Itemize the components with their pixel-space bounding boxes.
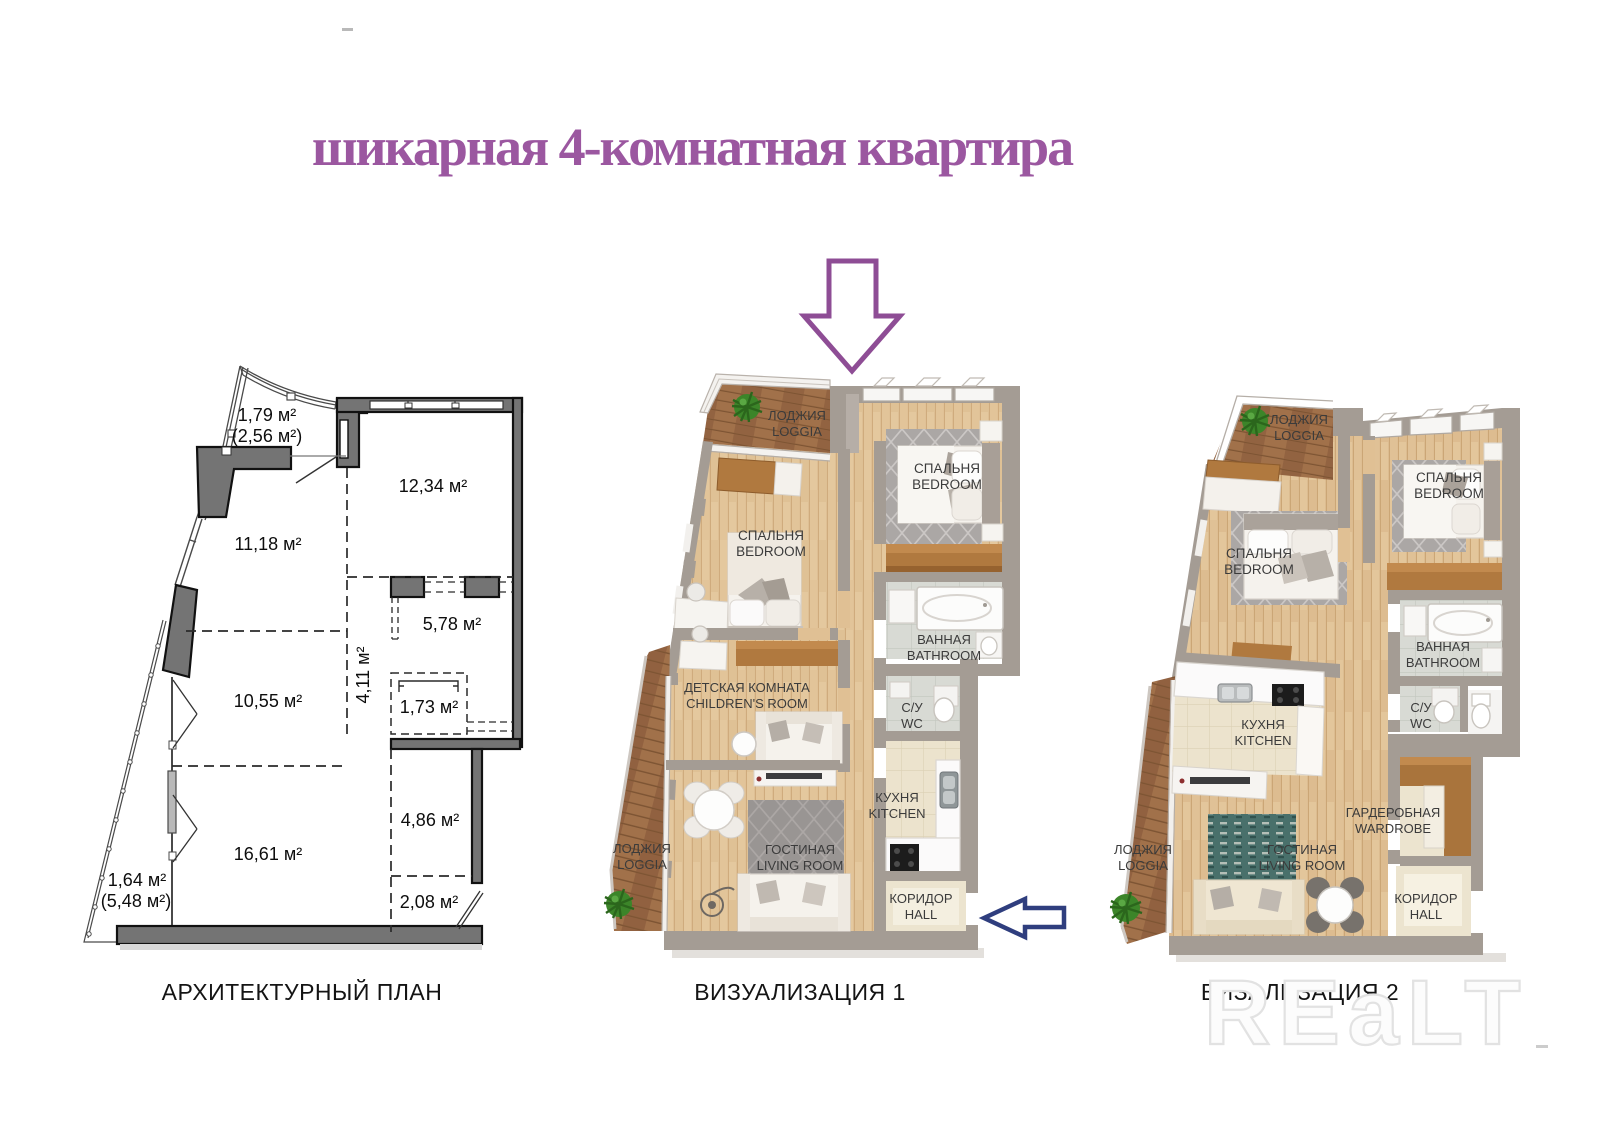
- svg-text:шикарная 4-комнатная квартира: шикарная 4-комнатная квартира: [312, 117, 1074, 177]
- svg-text:КУХНЯ: КУХНЯ: [1241, 717, 1284, 732]
- svg-text:HALL: HALL: [905, 907, 938, 922]
- svg-text:BEDROOM: BEDROOM: [1414, 486, 1484, 501]
- svg-text:ВАННАЯ: ВАННАЯ: [917, 632, 971, 647]
- svg-text:ГОСТИНАЯ: ГОСТИНАЯ: [765, 842, 835, 857]
- svg-text:СПАЛЬНЯ: СПАЛЬНЯ: [914, 461, 980, 476]
- svg-text:СПАЛЬНЯ: СПАЛЬНЯ: [1416, 470, 1482, 485]
- svg-text:16,61 м²: 16,61 м²: [234, 844, 302, 864]
- svg-text:ВИЗУАЛИЗАЦИЯ 1: ВИЗУАЛИЗАЦИЯ 1: [694, 979, 906, 1005]
- svg-text:1,79 м²: 1,79 м²: [238, 405, 296, 425]
- svg-text:СПАЛЬНЯ: СПАЛЬНЯ: [1226, 546, 1292, 561]
- svg-text:(5,48 м²): (5,48 м²): [101, 891, 171, 911]
- svg-text:ДЕТСКАЯ КОМНАТА: ДЕТСКАЯ КОМНАТА: [684, 680, 810, 695]
- svg-text:4,86 м²: 4,86 м²: [401, 810, 459, 830]
- svg-text:СПАЛЬНЯ: СПАЛЬНЯ: [738, 528, 804, 543]
- svg-text:ЛОДЖИЯ: ЛОДЖИЯ: [768, 408, 826, 423]
- svg-text:REaLT: REaLT: [1204, 962, 1529, 1064]
- svg-text:(2,56 м²): (2,56 м²): [232, 426, 302, 446]
- svg-text:WC: WC: [1410, 716, 1432, 731]
- svg-text:ЛОДЖИЯ: ЛОДЖИЯ: [1114, 842, 1172, 857]
- svg-text:4,11 м²: 4,11 м²: [353, 646, 373, 703]
- svg-text:КОРИДОР: КОРИДОР: [1394, 891, 1457, 906]
- svg-text:KITCHEN: KITCHEN: [1234, 733, 1291, 748]
- svg-text:11,18 м²: 11,18 м²: [234, 534, 301, 554]
- svg-text:КОРИДОР: КОРИДОР: [889, 891, 952, 906]
- svg-text:WARDROBE: WARDROBE: [1355, 821, 1431, 836]
- svg-text:LOGGIA: LOGGIA: [617, 857, 667, 872]
- svg-text:ЛОДЖИЯ: ЛОДЖИЯ: [613, 841, 671, 856]
- svg-text:CHILDREN'S ROOM: CHILDREN'S ROOM: [686, 696, 808, 711]
- svg-text:LIVING ROOM: LIVING ROOM: [1259, 858, 1346, 873]
- svg-text:HALL: HALL: [1410, 907, 1443, 922]
- svg-text:BATHROOM: BATHROOM: [907, 648, 981, 663]
- svg-text:LOGGIA: LOGGIA: [1274, 428, 1324, 443]
- svg-text:С/У: С/У: [1410, 700, 1432, 715]
- svg-text:LOGGIA: LOGGIA: [772, 424, 822, 439]
- svg-text:КУХНЯ: КУХНЯ: [875, 790, 918, 805]
- svg-text:LOGGIA: LOGGIA: [1118, 858, 1168, 873]
- svg-text:ВАННАЯ: ВАННАЯ: [1416, 639, 1470, 654]
- svg-text:10,55 м²: 10,55 м²: [234, 691, 302, 711]
- svg-text:12,34 м²: 12,34 м²: [399, 476, 467, 496]
- svg-text:С/У: С/У: [901, 700, 923, 715]
- svg-text:LIVING ROOM: LIVING ROOM: [757, 858, 844, 873]
- svg-text:KITCHEN: KITCHEN: [868, 806, 925, 821]
- svg-text:ЛОДЖИЯ: ЛОДЖИЯ: [1270, 412, 1328, 427]
- svg-text:5,78 м²: 5,78 м²: [423, 614, 481, 634]
- svg-text:АРХИТЕКТУРНЫЙ ПЛАН: АРХИТЕКТУРНЫЙ ПЛАН: [162, 978, 443, 1005]
- svg-text:1,64 м²: 1,64 м²: [108, 870, 166, 890]
- svg-text:BEDROOM: BEDROOM: [736, 544, 806, 559]
- svg-text:2,08 м²: 2,08 м²: [400, 892, 458, 912]
- svg-text:ГАРДЕРОБНАЯ: ГАРДЕРОБНАЯ: [1346, 805, 1441, 820]
- svg-text:ГОСТИНАЯ: ГОСТИНАЯ: [1267, 842, 1337, 857]
- svg-text:1,73 м²: 1,73 м²: [400, 697, 458, 717]
- svg-text:BATHROOM: BATHROOM: [1406, 655, 1480, 670]
- svg-text:BEDROOM: BEDROOM: [1224, 562, 1294, 577]
- svg-text:WC: WC: [901, 716, 923, 731]
- svg-text:BEDROOM: BEDROOM: [912, 477, 982, 492]
